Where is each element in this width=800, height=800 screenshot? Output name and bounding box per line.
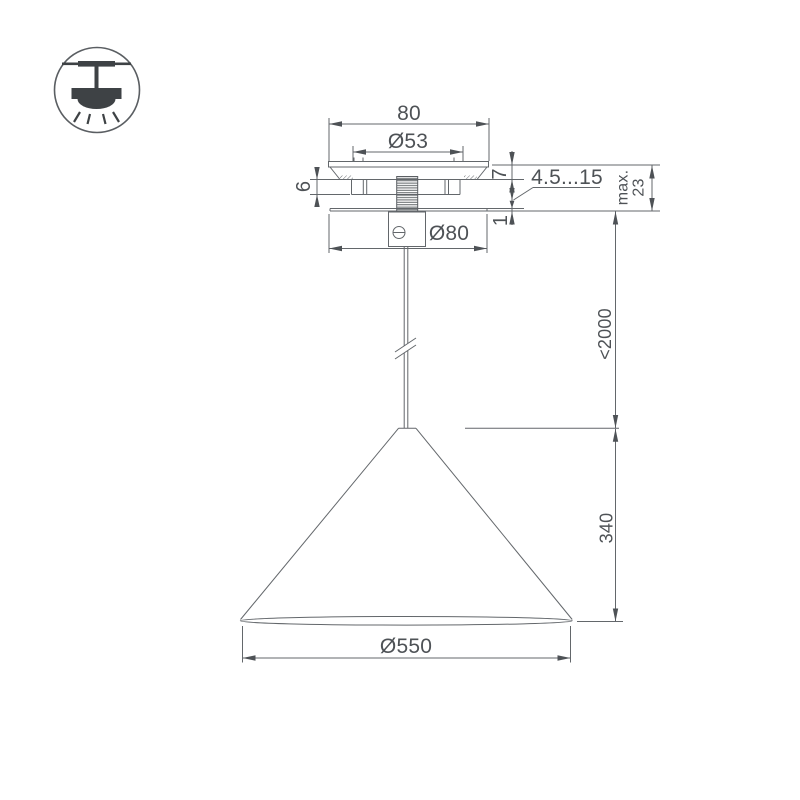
icon-lamp-body bbox=[72, 88, 122, 99]
threaded-rod bbox=[397, 177, 418, 213]
dim-canopy-dia-label: Ø80 bbox=[429, 222, 469, 245]
dim-max-word: max. bbox=[615, 170, 632, 205]
dim-shade-height: 340 bbox=[596, 429, 618, 622]
dim-mount-inner-dia-label: Ø53 bbox=[388, 130, 428, 153]
leader-line bbox=[514, 188, 534, 201]
shade-bottom-rim bbox=[240, 617, 572, 626]
dim-plate-stack: 7 1 4.5...15 bbox=[489, 151, 603, 226]
cone-shade bbox=[240, 428, 572, 625]
dim-max-value: 23 bbox=[631, 178, 648, 196]
mount-plate-ticks bbox=[354, 158, 463, 162]
dim-mount-inner-dia: Ø53 bbox=[353, 130, 463, 155]
dim-shade-height-label: 340 bbox=[596, 513, 616, 544]
cable-break-gap bbox=[395, 338, 416, 359]
pendant-lamp-icon bbox=[55, 48, 140, 133]
extension-lines bbox=[243, 118, 661, 663]
spring-clip-right bbox=[464, 176, 477, 180]
icon-stem bbox=[95, 65, 99, 89]
dim-shade-dia-label: Ø550 bbox=[380, 635, 432, 658]
canopy-plate bbox=[330, 209, 660, 212]
dim-adjustable-gap-label: 4.5...15 bbox=[531, 166, 603, 189]
mount-top-plate bbox=[329, 162, 489, 168]
dim-shade-dia: Ø550 bbox=[243, 635, 571, 661]
dim-max-total: max. 23 bbox=[615, 166, 655, 212]
dim-top-width-label: 80 bbox=[397, 102, 421, 125]
technical-drawing-page: 80 Ø53 6 7 1 4.5...15 max. 23 bbox=[0, 0, 800, 800]
dim-suspension-length-label: <2000 bbox=[595, 308, 615, 360]
dim-canopy-plate-thickness-label: 1 bbox=[490, 215, 512, 226]
dim-suspension-length: <2000 bbox=[595, 212, 618, 429]
dim-plate-thickness-label: 7 bbox=[489, 168, 511, 179]
pendant-lamp-dimension-drawing: 80 Ø53 6 7 1 4.5...15 max. 23 bbox=[0, 0, 800, 800]
dim-top-width: 80 bbox=[329, 102, 489, 127]
dim-bracket-height-label: 6 bbox=[293, 181, 315, 192]
spring-clip-left bbox=[340, 176, 353, 180]
dim-bracket-height: 6 bbox=[293, 167, 320, 207]
suspension-cable bbox=[395, 247, 416, 429]
